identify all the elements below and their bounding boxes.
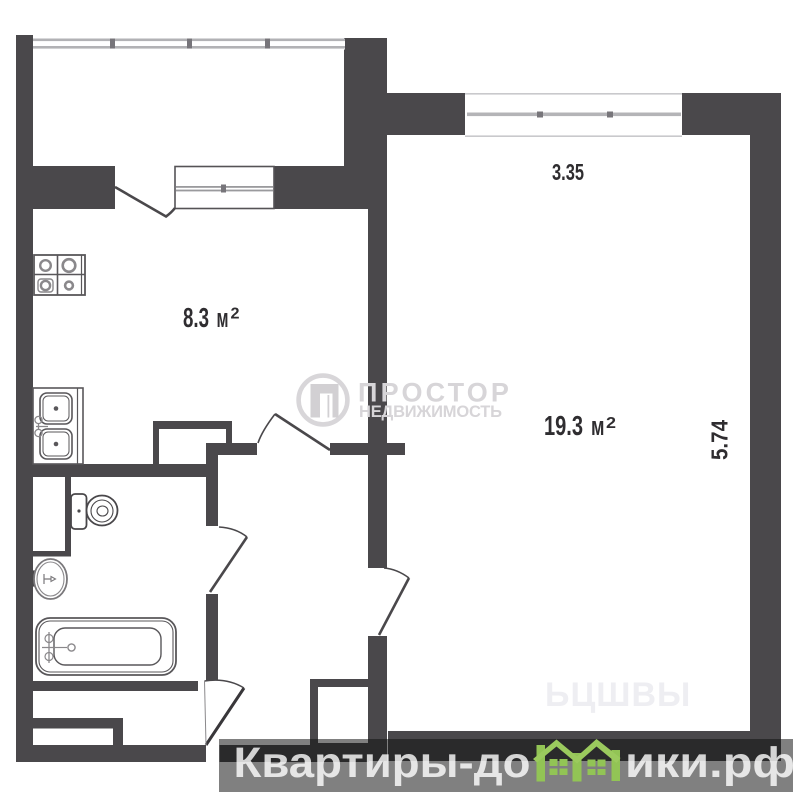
svg-text:м: м [591,411,605,441]
svg-text:ЬЦШВЫ: ЬЦШВЫ [545,676,691,714]
svg-text:2: 2 [606,415,616,432]
svg-text:м: м [217,303,229,333]
svg-text:8.3: 8.3 [183,302,209,333]
svg-text:5.74: 5.74 [707,420,733,460]
svg-text:НЕДВИЖИМОСТЬ: НЕДВИЖИМОСТЬ [359,403,502,421]
svg-text:3.35: 3.35 [552,159,584,185]
svg-text:19.3: 19.3 [544,410,583,441]
svg-text:ики.рф: ики.рф [625,739,795,787]
svg-text:2: 2 [231,306,240,323]
svg-text:Квартиры-до: Квартиры-до [234,739,531,787]
